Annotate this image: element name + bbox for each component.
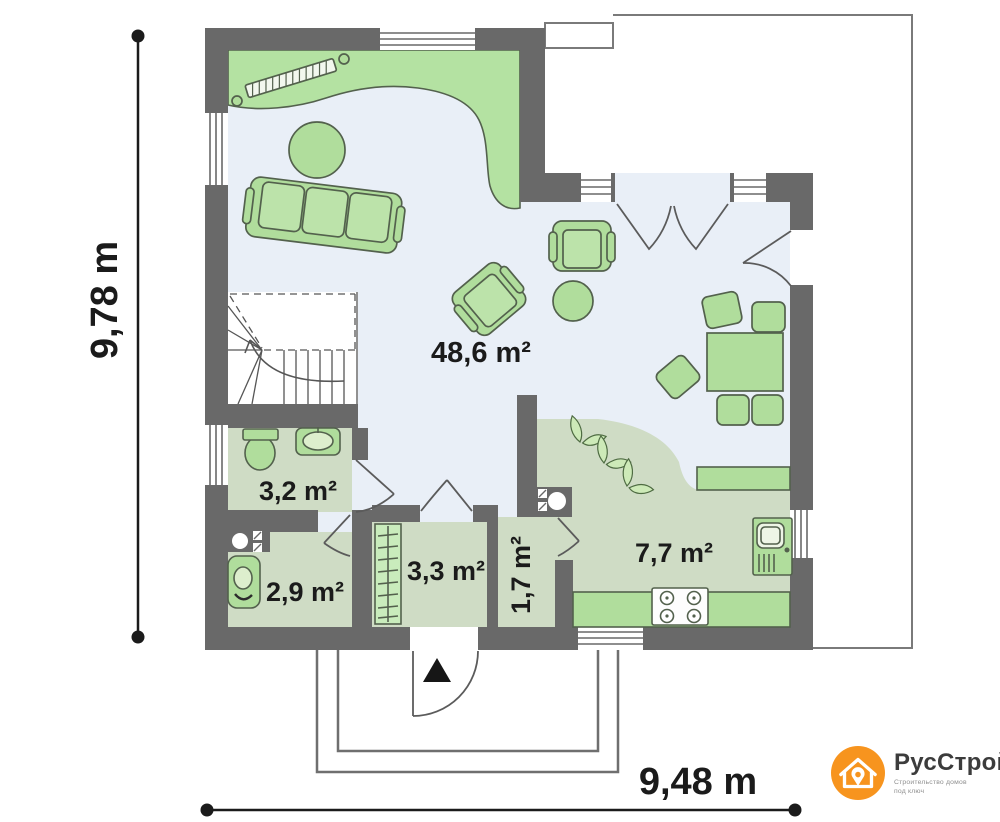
tagline-line-2: под ключ bbox=[894, 788, 924, 795]
window-right-icon bbox=[790, 505, 813, 563]
logo-text: РусСтрой Строительство домов под ключ bbox=[894, 750, 1000, 797]
floor-plan-canvas: 48,6 m² 3,2 m² 2,9 m² 3,3 m² 1,7 m² 7,7 … bbox=[0, 0, 1000, 822]
kitchen-sink-unit-icon bbox=[753, 518, 792, 575]
window-terrace-left-icon bbox=[577, 173, 615, 202]
room-label-kitchen: 7,7 m² bbox=[635, 538, 713, 568]
tagline-line-1: Строительство домов bbox=[894, 779, 967, 786]
room-label-wc: 2,9 m² bbox=[266, 577, 344, 607]
brand-name: РусСтрой bbox=[894, 750, 1000, 775]
dining-chair-icon bbox=[701, 291, 743, 330]
armchair-icon bbox=[549, 221, 615, 271]
window-left-lower-icon bbox=[205, 420, 228, 490]
brand-tagline: Строительство домов под ключ bbox=[894, 778, 1000, 796]
dining-chair-icon bbox=[752, 302, 785, 332]
coffee-table-icon bbox=[289, 122, 345, 178]
bathroom-sink-icon bbox=[296, 427, 340, 455]
stove-icon bbox=[652, 588, 708, 625]
room-label-entry: 3,3 m² bbox=[407, 556, 485, 586]
dimension-label-vertical: 9,78 m bbox=[84, 241, 126, 359]
side-table-icon bbox=[553, 281, 593, 321]
house-pin-icon bbox=[831, 746, 885, 800]
window-left-upper-icon bbox=[205, 108, 228, 190]
front-door-icon bbox=[410, 627, 478, 716]
room-label-bathroom: 3,2 m² bbox=[259, 476, 337, 506]
room-label-living: 48,6 m² bbox=[431, 337, 531, 369]
window-bottom-icon bbox=[573, 627, 648, 650]
coat-rack-icon bbox=[375, 524, 401, 624]
window-top-icon bbox=[375, 28, 480, 50]
floor-plan-svg: 48,6 m² 3,2 m² 2,9 m² 3,3 m² 1,7 m² 7,7 … bbox=[0, 0, 1000, 822]
dimension-label-horizontal: 9,48 m bbox=[639, 761, 757, 803]
terrace-area-right bbox=[813, 173, 913, 649]
window-terrace-right-icon bbox=[730, 173, 770, 202]
dining-chair-icon bbox=[717, 395, 749, 425]
brand-logo: РусСтрой Строительство домов под ключ bbox=[831, 738, 999, 808]
dining-chair-icon bbox=[752, 395, 783, 425]
wc-sink-icon bbox=[228, 556, 260, 608]
kitchen-counter-top-icon bbox=[697, 467, 790, 490]
dining-table-icon bbox=[707, 333, 783, 391]
room-label-hall: 1,7 m² bbox=[506, 536, 536, 614]
